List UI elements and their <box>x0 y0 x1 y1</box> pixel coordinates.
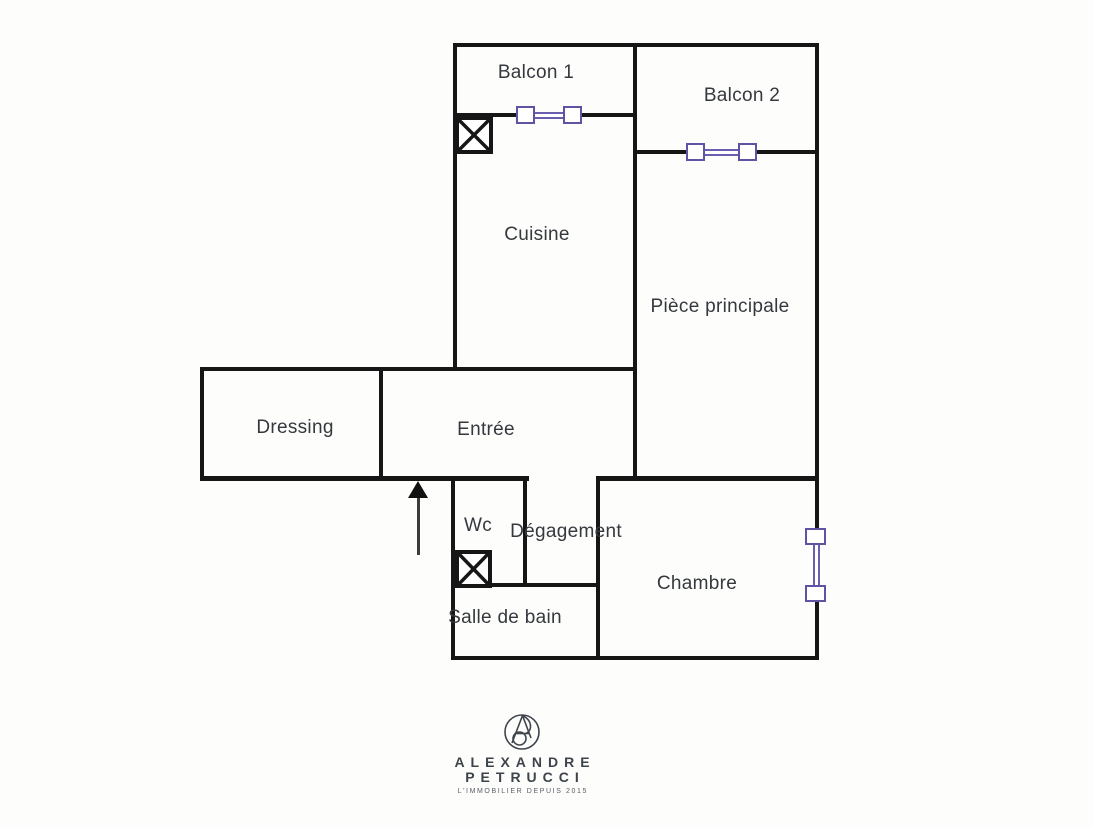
room-label-salle-de-bain: Salle de bain <box>448 607 562 629</box>
agency-tagline: L'IMMOBILIER DEPUIS 2015 <box>402 788 642 795</box>
wall-chambre-left <box>596 477 600 660</box>
wall-outer-bottom <box>451 656 819 660</box>
wall-entree-top <box>200 367 637 371</box>
agency-logo: ALEXANDRE PETRUCCI L'IMMOBILIER DEPUIS 2… <box>402 712 642 795</box>
room-label-balcon-1: Balcon 1 <box>498 62 574 84</box>
room-label-balcon-2: Balcon 2 <box>704 85 780 107</box>
cuisine-shaft-icon <box>455 116 493 154</box>
room-label-dressing: Dressing <box>256 417 333 439</box>
room-label-chambre: Chambre <box>657 573 737 595</box>
wall-center-divider <box>633 43 637 481</box>
wall-dressing-left <box>200 367 204 481</box>
room-label-entree: Entrée <box>457 419 515 441</box>
room-label-degagement: Dégagement <box>510 521 622 543</box>
agency-monogram-icon <box>502 712 542 752</box>
room-label-wc: Wc <box>464 515 492 537</box>
wall-cuisine-left <box>453 43 457 371</box>
floor-plan: Balcon 1 Balcon 2 Cuisine Pièce principa… <box>0 0 1093 827</box>
wc-shaft-icon <box>455 550 492 588</box>
wall-entree-bottom <box>200 476 529 481</box>
room-label-piece-principale: Pièce principale <box>651 296 790 318</box>
room-label-cuisine: Cuisine <box>504 224 569 246</box>
wall-chambre-top <box>596 476 819 481</box>
agency-name-line2: PETRUCCI <box>402 770 642 785</box>
wall-dressing-right <box>379 367 383 481</box>
agency-name-line1: ALEXANDRE <box>402 755 642 770</box>
